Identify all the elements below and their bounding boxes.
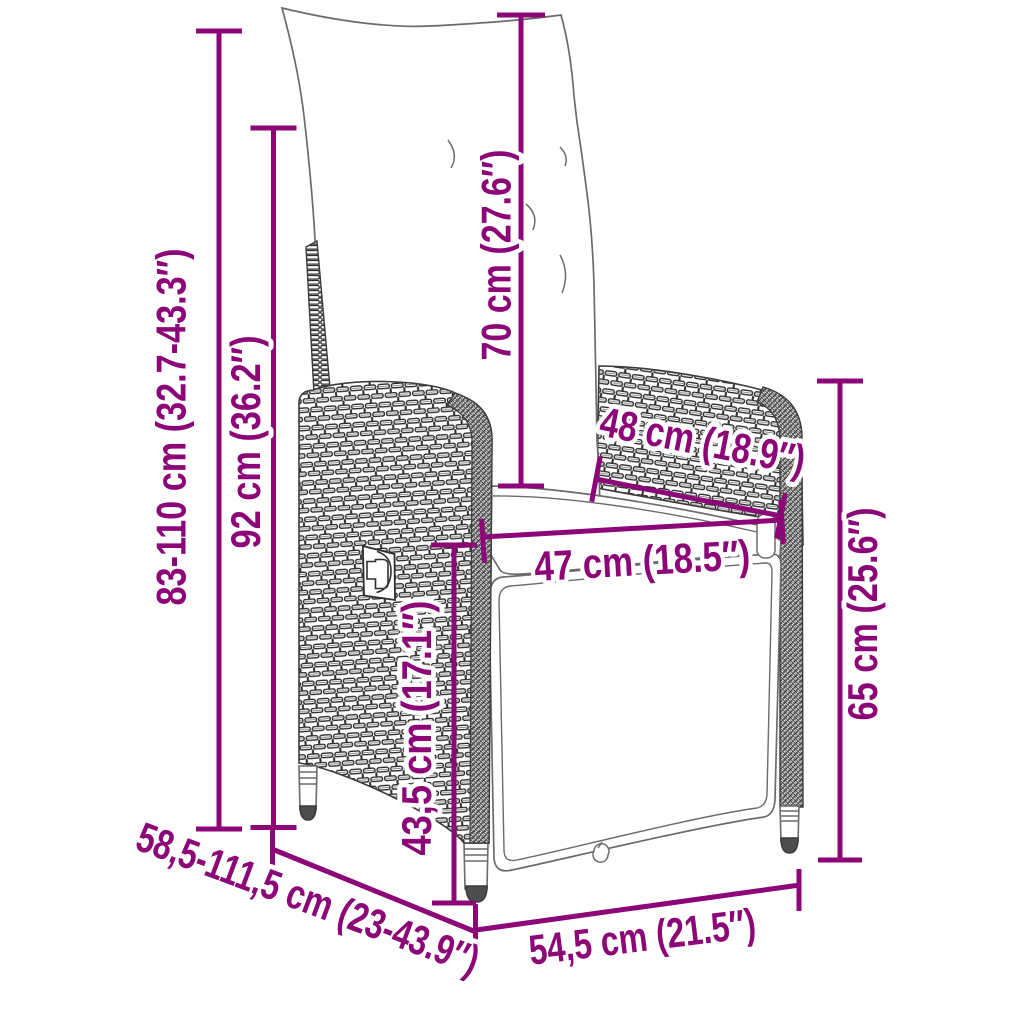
svg-text:83-110 cm (32.7-43.3″): 83-110 cm (32.7-43.3″): [148, 249, 195, 606]
svg-text:43,5 cm (17.1″): 43,5 cm (17.1″): [393, 601, 440, 856]
svg-text:65 cm (25.6″): 65 cm (25.6″): [839, 508, 886, 721]
svg-text:70 cm (27.6″): 70 cm (27.6″): [473, 150, 520, 361]
svg-text:92 cm (36.2″): 92 cm (36.2″): [222, 336, 269, 549]
